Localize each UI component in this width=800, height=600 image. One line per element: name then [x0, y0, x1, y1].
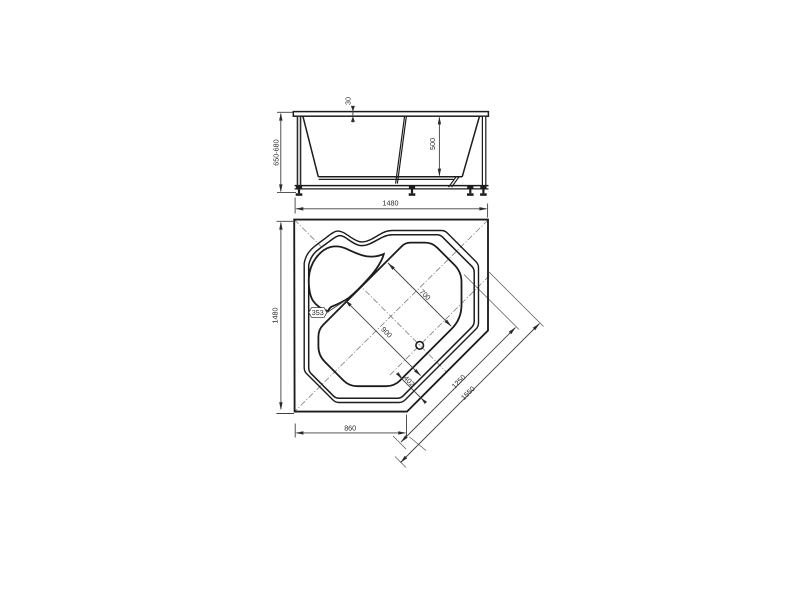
svg-text:700: 700	[418, 287, 433, 302]
svg-text:500: 500	[428, 138, 437, 150]
svg-text:1480: 1480	[383, 199, 399, 208]
svg-text:650-680: 650-680	[272, 139, 281, 165]
svg-text:1250: 1250	[450, 373, 468, 391]
svg-text:860: 860	[344, 423, 356, 432]
svg-text:900: 900	[379, 325, 394, 340]
svg-text:1480: 1480	[271, 308, 280, 324]
svg-text:1550: 1550	[459, 384, 477, 402]
svg-text:30: 30	[344, 97, 353, 105]
svg-text:353: 353	[312, 308, 324, 317]
